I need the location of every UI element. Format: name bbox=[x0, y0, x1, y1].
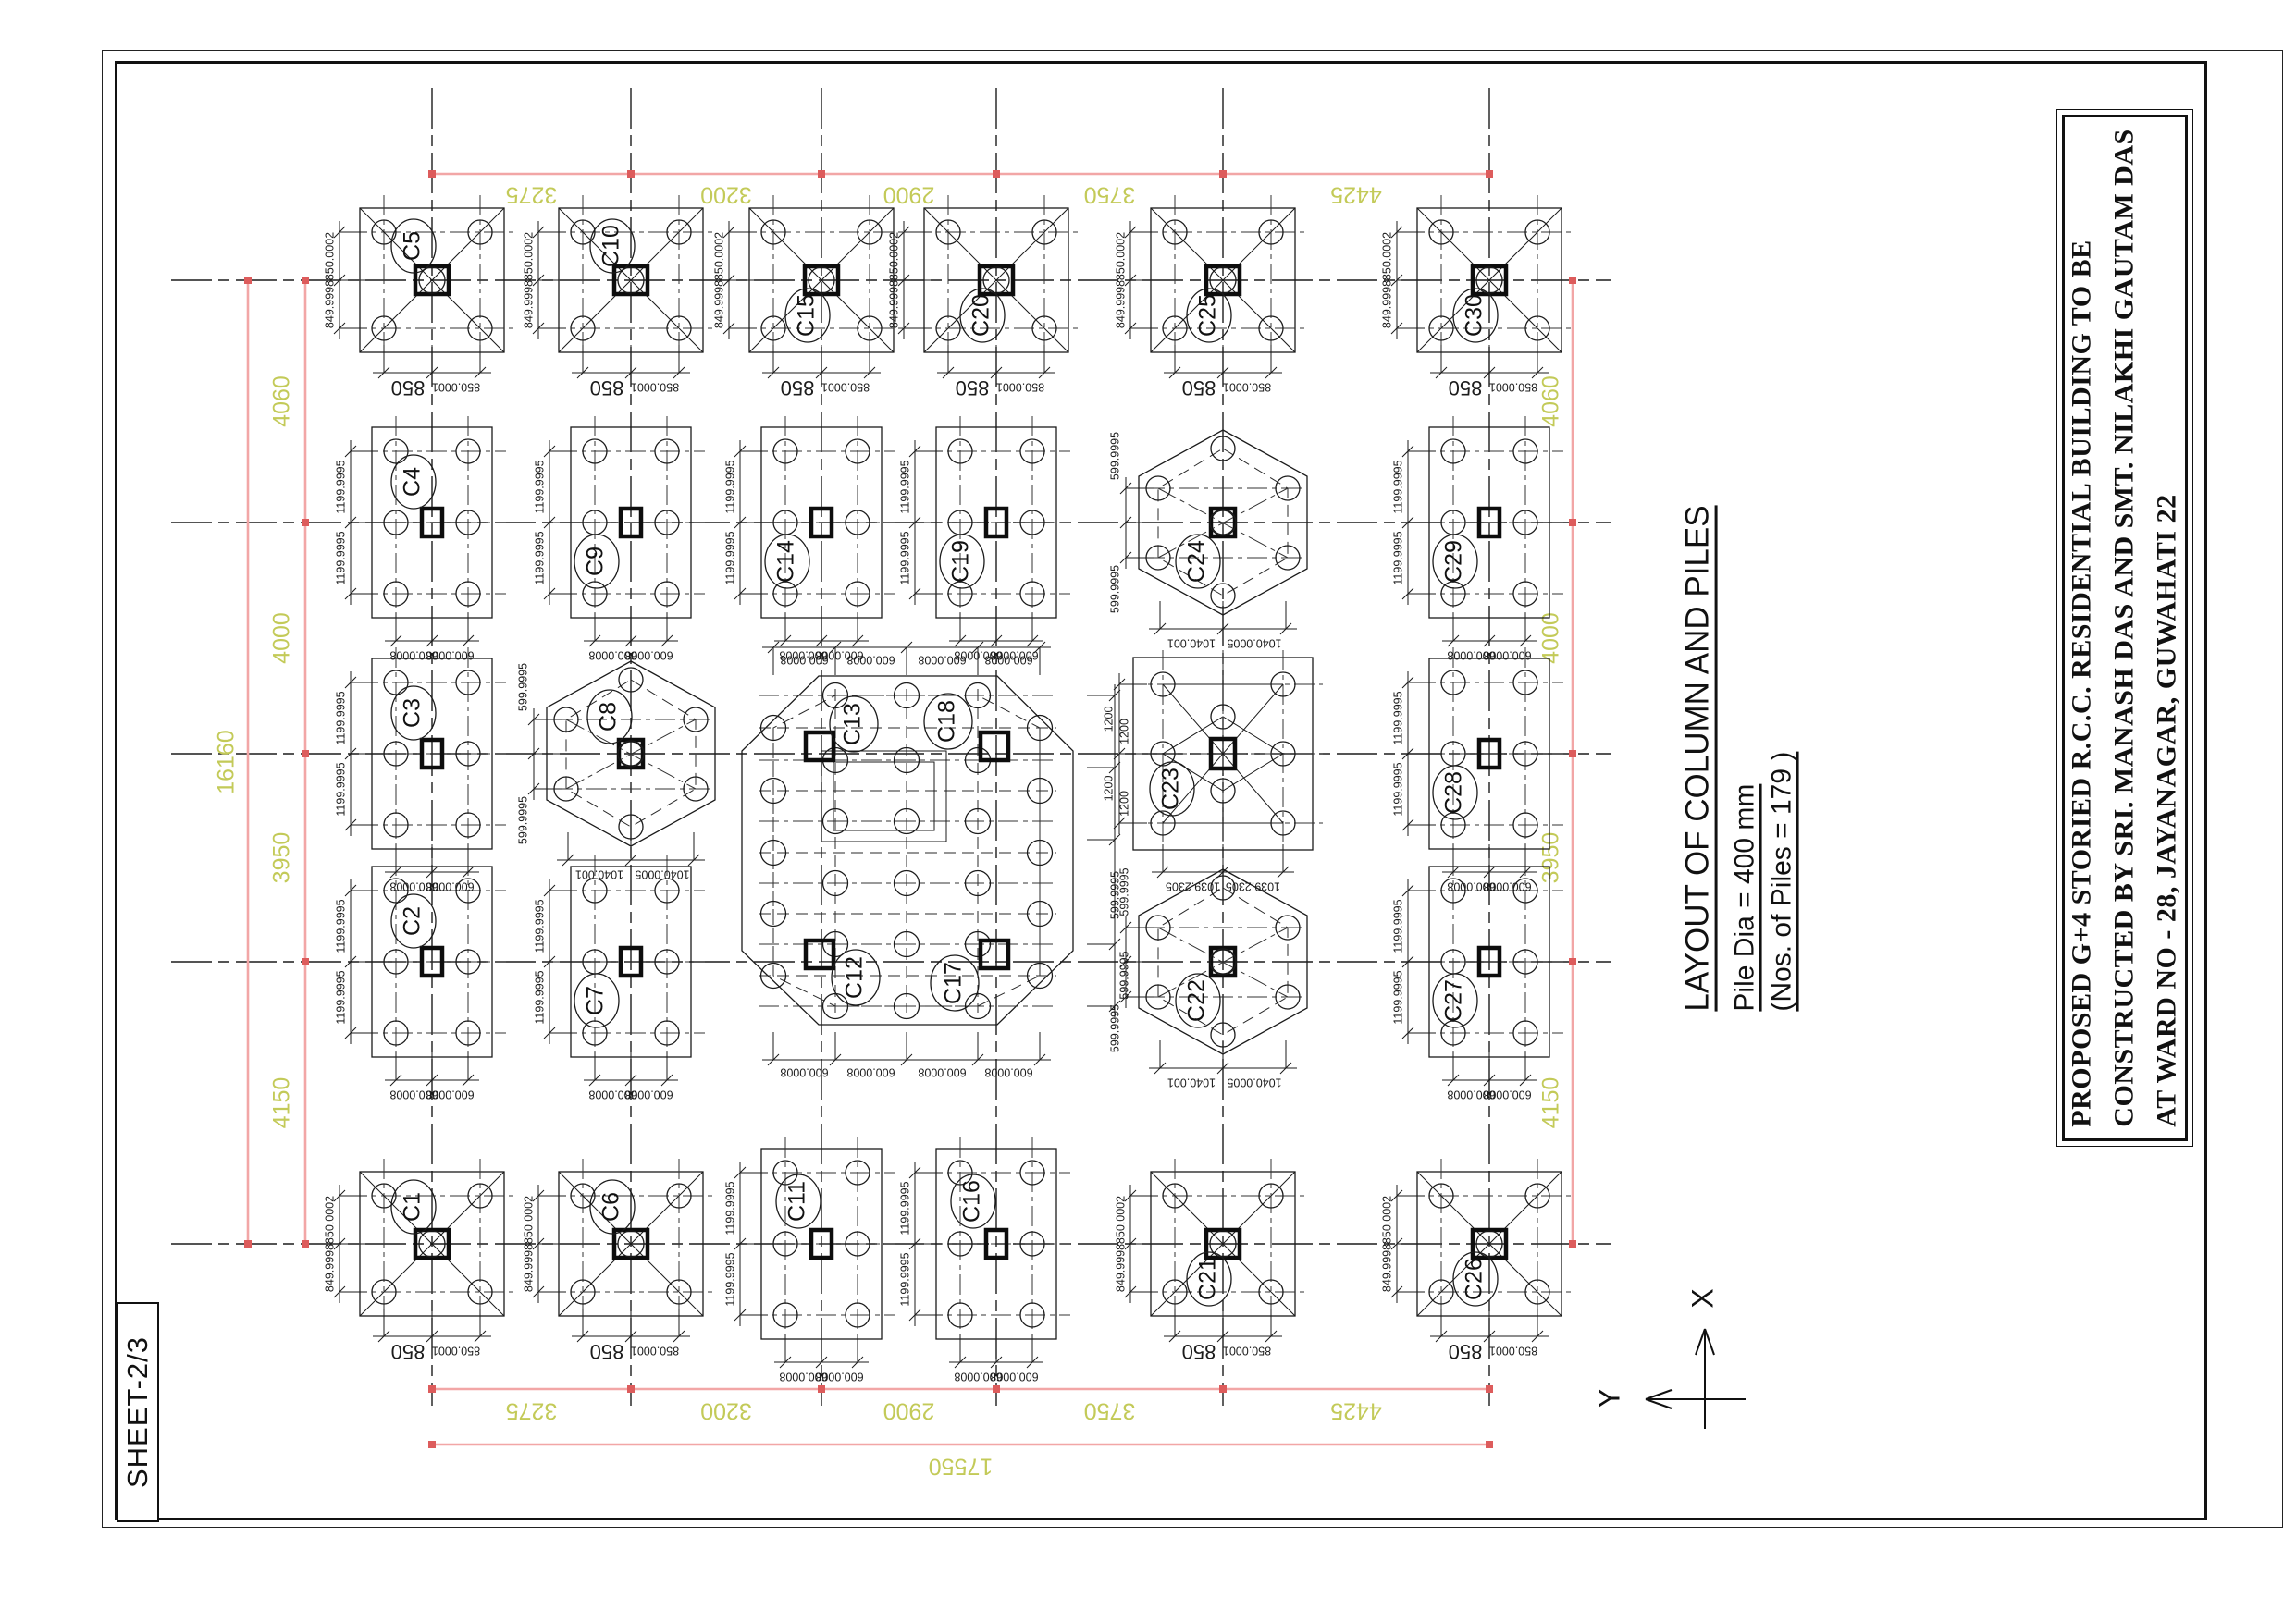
svg-text:1200: 1200 bbox=[1102, 707, 1115, 732]
svg-text:600.0008: 600.0008 bbox=[918, 1066, 966, 1079]
svg-text:599.9995: 599.9995 bbox=[1117, 951, 1130, 999]
svg-text:4000: 4000 bbox=[269, 612, 295, 664]
svg-text:1199.9995: 1199.9995 bbox=[334, 460, 347, 513]
pile-cap-C26: 850.0002849.9998850850.0001C26 bbox=[1380, 1159, 1574, 1363]
svg-text:850: 850 bbox=[590, 376, 624, 400]
svg-text:3950: 3950 bbox=[1538, 832, 1564, 884]
svg-text:2900: 2900 bbox=[883, 1397, 935, 1423]
svg-text:C24: C24 bbox=[1184, 540, 1210, 583]
svg-text:1199.9995: 1199.9995 bbox=[1391, 899, 1404, 953]
svg-text:600.0008: 600.0008 bbox=[426, 880, 474, 893]
svg-text:4425: 4425 bbox=[1330, 1397, 1382, 1423]
svg-text:C23: C23 bbox=[1158, 768, 1184, 810]
svg-text:1199.9995: 1199.9995 bbox=[1391, 691, 1404, 744]
svg-text:600.0008: 600.0008 bbox=[426, 649, 474, 662]
svg-text:850: 850 bbox=[1182, 376, 1216, 400]
svg-text:C10: C10 bbox=[599, 225, 624, 267]
svg-text:600.0008: 600.0008 bbox=[426, 1088, 474, 1101]
svg-text:850.0001: 850.0001 bbox=[1489, 1345, 1537, 1358]
svg-text:600.0008: 600.0008 bbox=[984, 1066, 1032, 1079]
pile-cap-C22: 599.9995599.99951040.0011040.0005C22 bbox=[1108, 869, 1307, 1089]
svg-text:1040.0005: 1040.0005 bbox=[1227, 1076, 1281, 1089]
svg-text:850: 850 bbox=[956, 376, 990, 400]
svg-text:850: 850 bbox=[1182, 1340, 1216, 1363]
svg-text:1199.9995: 1199.9995 bbox=[334, 899, 347, 953]
svg-text:4150: 4150 bbox=[269, 1077, 295, 1129]
svg-text:C8: C8 bbox=[596, 702, 622, 732]
pile-cap-C6: 850.0002849.9998850850.0001C6 bbox=[522, 1159, 716, 1363]
svg-text:599.9995: 599.9995 bbox=[1117, 867, 1130, 916]
svg-text:3950: 3950 bbox=[269, 832, 295, 884]
svg-text:2900: 2900 bbox=[883, 181, 935, 207]
svg-text:1040.001: 1040.001 bbox=[1167, 637, 1216, 650]
pile-cap-C1: 850.0002849.9998850850.0001C1 bbox=[323, 1159, 517, 1363]
svg-text:C6: C6 bbox=[599, 1192, 624, 1222]
svg-text:C1: C1 bbox=[400, 1192, 426, 1222]
svg-text:600.0008: 600.0008 bbox=[990, 1371, 1038, 1383]
pile-layout-plan: 3275320029003750442532753200290037504425… bbox=[0, 0, 2296, 1623]
svg-text:1199.9995: 1199.9995 bbox=[334, 970, 347, 1024]
svg-text:1199.9995: 1199.9995 bbox=[723, 1181, 736, 1235]
svg-text:600.0008: 600.0008 bbox=[780, 654, 828, 667]
svg-text:C30: C30 bbox=[1462, 294, 1487, 337]
svg-text:1199.9995: 1199.9995 bbox=[1391, 460, 1404, 513]
svg-text:849.9998: 849.9998 bbox=[323, 1244, 336, 1292]
svg-text:1040.0005: 1040.0005 bbox=[635, 868, 689, 881]
svg-text:599.9995: 599.9995 bbox=[516, 663, 529, 711]
svg-text:C12: C12 bbox=[842, 956, 868, 999]
svg-text:X: X bbox=[1685, 1288, 1719, 1308]
svg-text:1040.001: 1040.001 bbox=[575, 868, 623, 881]
svg-text:600.0008: 600.0008 bbox=[846, 1066, 895, 1079]
svg-text:C22: C22 bbox=[1184, 979, 1210, 1022]
svg-text:C3: C3 bbox=[400, 698, 426, 728]
svg-text:17550: 17550 bbox=[929, 1453, 994, 1479]
svg-text:850.0001: 850.0001 bbox=[631, 381, 679, 394]
svg-text:600.0008: 600.0008 bbox=[1483, 880, 1531, 893]
pile-cap-C19: 1199.99951199.9995600.0008600.0008C19 bbox=[898, 416, 1070, 662]
svg-text:850.0002: 850.0002 bbox=[1380, 232, 1393, 280]
svg-text:850: 850 bbox=[590, 1340, 624, 1363]
pile-cap-C24: 599.9995599.99951040.0011040.0005C24 bbox=[1108, 430, 1307, 650]
svg-text:C27: C27 bbox=[1441, 979, 1467, 1022]
svg-text:850: 850 bbox=[391, 1340, 426, 1363]
svg-text:850.0001: 850.0001 bbox=[1223, 1345, 1271, 1358]
svg-text:850.0002: 850.0002 bbox=[323, 232, 336, 280]
svg-text:850.0002: 850.0002 bbox=[1114, 1196, 1127, 1244]
svg-text:600.0008: 600.0008 bbox=[624, 649, 673, 662]
svg-text:C18: C18 bbox=[934, 700, 960, 743]
svg-text:1039.2305: 1039.2305 bbox=[1226, 880, 1280, 893]
svg-text:600.0008: 600.0008 bbox=[846, 654, 895, 667]
pile-cap-C25: 850.0002849.9998850850.0001C25 bbox=[1114, 195, 1308, 400]
svg-text:599.9995: 599.9995 bbox=[1108, 432, 1121, 480]
svg-text:3750: 3750 bbox=[1084, 1397, 1136, 1423]
svg-text:C20: C20 bbox=[969, 294, 994, 337]
svg-text:4000: 4000 bbox=[1538, 612, 1564, 664]
svg-text:1199.9995: 1199.9995 bbox=[1391, 970, 1404, 1024]
svg-text:1199.9995: 1199.9995 bbox=[898, 1252, 911, 1306]
svg-text:850.0002: 850.0002 bbox=[712, 232, 725, 280]
svg-text:850.0001: 850.0001 bbox=[631, 1345, 679, 1358]
svg-text:C7: C7 bbox=[583, 986, 609, 1015]
svg-text:850: 850 bbox=[391, 376, 426, 400]
svg-text:C25: C25 bbox=[1195, 294, 1221, 337]
svg-text:850.0001: 850.0001 bbox=[1223, 381, 1271, 394]
svg-text:850.0002: 850.0002 bbox=[1114, 232, 1127, 280]
svg-text:C13: C13 bbox=[840, 703, 866, 745]
svg-text:849.9998: 849.9998 bbox=[522, 280, 535, 328]
svg-text:850: 850 bbox=[781, 376, 815, 400]
pile-cap-C4: 1199.99951199.9995600.0008600.0008C4 bbox=[334, 416, 506, 662]
svg-text:C11: C11 bbox=[784, 1181, 810, 1222]
svg-text:599.9995: 599.9995 bbox=[516, 796, 529, 844]
svg-text:849.9998: 849.9998 bbox=[1380, 1244, 1393, 1292]
svg-text:1040.0005: 1040.0005 bbox=[1227, 637, 1281, 650]
svg-text:850.0002: 850.0002 bbox=[887, 232, 900, 280]
svg-text:4060: 4060 bbox=[1538, 375, 1564, 427]
svg-text:600.0008: 600.0008 bbox=[1483, 1088, 1531, 1101]
pile-cap-C8: 599.9995599.99951040.0011040.0005C8 bbox=[516, 661, 715, 881]
svg-text:1199.9995: 1199.9995 bbox=[334, 531, 347, 584]
pile-cap-C16: 1199.99951199.9995600.0008600.0008C16 bbox=[898, 1137, 1070, 1383]
svg-text:3200: 3200 bbox=[700, 1397, 752, 1423]
svg-text:1199.9995: 1199.9995 bbox=[533, 899, 546, 953]
pile-cap-C21: 850.0002849.9998850850.0001C21 bbox=[1114, 1159, 1308, 1363]
svg-text:1199.9995: 1199.9995 bbox=[898, 1181, 911, 1235]
svg-text:600.0008: 600.0008 bbox=[918, 654, 966, 667]
svg-text:849.9998: 849.9998 bbox=[1380, 280, 1393, 328]
svg-text:1199.9995: 1199.9995 bbox=[1391, 531, 1404, 584]
pile-cap-C15: 850.0002849.9998850850.0001C15 bbox=[712, 195, 907, 400]
svg-text:C17: C17 bbox=[941, 962, 967, 1004]
svg-text:Y: Y bbox=[1592, 1388, 1625, 1408]
svg-text:1199.9995: 1199.9995 bbox=[1391, 762, 1404, 816]
pile-cap-C10: 850.0002849.9998850850.0001C10 bbox=[522, 195, 716, 400]
svg-text:1200: 1200 bbox=[1117, 719, 1130, 744]
svg-text:16160: 16160 bbox=[214, 730, 240, 794]
svg-text:C16: C16 bbox=[959, 1180, 985, 1223]
svg-text:C28: C28 bbox=[1441, 771, 1467, 814]
svg-text:600.0008: 600.0008 bbox=[815, 1371, 863, 1383]
svg-text:849.9998: 849.9998 bbox=[1114, 280, 1127, 328]
svg-text:849.9998: 849.9998 bbox=[1114, 1244, 1127, 1292]
svg-text:600.0008: 600.0008 bbox=[780, 1066, 828, 1079]
svg-text:1199.9995: 1199.9995 bbox=[723, 1252, 736, 1306]
svg-text:1199.9995: 1199.9995 bbox=[533, 460, 546, 513]
svg-text:C5: C5 bbox=[400, 231, 426, 261]
svg-text:850.0001: 850.0001 bbox=[432, 1345, 480, 1358]
svg-text:C2: C2 bbox=[400, 906, 426, 936]
svg-text:850: 850 bbox=[1449, 1340, 1483, 1363]
svg-text:C9: C9 bbox=[583, 547, 609, 576]
svg-text:1199.9995: 1199.9995 bbox=[533, 970, 546, 1024]
svg-text:850.0001: 850.0001 bbox=[432, 381, 480, 394]
svg-text:3275: 3275 bbox=[506, 1397, 558, 1423]
svg-text:C4: C4 bbox=[400, 467, 426, 497]
pile-cap-C11: 1199.99951199.9995600.0008600.0008C11 bbox=[723, 1137, 895, 1383]
svg-text:1199.9995: 1199.9995 bbox=[898, 460, 911, 513]
svg-text:4425: 4425 bbox=[1330, 181, 1382, 207]
svg-text:C19: C19 bbox=[948, 540, 974, 583]
svg-text:1200: 1200 bbox=[1117, 791, 1130, 817]
drawing-sheet: { "sheet": { "label": "SHEET-2/3" }, "ti… bbox=[0, 0, 2296, 1623]
axis-indicator: XY bbox=[1592, 1288, 1746, 1429]
svg-text:850: 850 bbox=[1449, 376, 1483, 400]
svg-text:850.0001: 850.0001 bbox=[996, 381, 1044, 394]
svg-text:850.0001: 850.0001 bbox=[821, 381, 870, 394]
svg-text:4150: 4150 bbox=[1538, 1077, 1564, 1129]
svg-text:599.9995: 599.9995 bbox=[1108, 565, 1121, 613]
pile-cap-raft-C12-C13-C17-C18: C13C18C12C17600.0008600.0008600.0008600.… bbox=[742, 642, 1130, 1079]
svg-text:849.9998: 849.9998 bbox=[522, 1244, 535, 1292]
svg-text:3200: 3200 bbox=[700, 181, 752, 207]
svg-text:C15: C15 bbox=[794, 294, 820, 337]
svg-text:1200: 1200 bbox=[1102, 776, 1115, 802]
svg-text:C26: C26 bbox=[1462, 1258, 1487, 1300]
svg-text:850.0001: 850.0001 bbox=[1489, 381, 1537, 394]
pile-cap-C20: 850.0002849.9998850850.0001C20 bbox=[887, 195, 1081, 400]
svg-text:1040.001: 1040.001 bbox=[1167, 1076, 1216, 1089]
svg-text:849.9998: 849.9998 bbox=[712, 280, 725, 328]
pile-cap-C9: 1199.99951199.9995600.0008600.0008C9 bbox=[533, 416, 705, 662]
svg-text:600.0008: 600.0008 bbox=[984, 654, 1032, 667]
svg-text:C14: C14 bbox=[773, 540, 799, 583]
svg-text:600.0008: 600.0008 bbox=[1483, 649, 1531, 662]
svg-text:4060: 4060 bbox=[269, 375, 295, 427]
svg-text:3750: 3750 bbox=[1084, 181, 1136, 207]
svg-text:849.9998: 849.9998 bbox=[323, 280, 336, 328]
svg-text:850.0002: 850.0002 bbox=[522, 1196, 535, 1244]
svg-text:850.0002: 850.0002 bbox=[522, 232, 535, 280]
svg-text:1199.9995: 1199.9995 bbox=[334, 762, 347, 816]
svg-text:1199.9995: 1199.9995 bbox=[723, 460, 736, 513]
pile-cap-C3: 1199.99951199.9995600.0008600.0008C3 bbox=[334, 647, 506, 893]
svg-text:3275: 3275 bbox=[506, 181, 558, 207]
pile-cap-C14: 1199.99951199.9995600.0008600.0008C14 bbox=[723, 416, 895, 662]
pile-cap-C30: 850.0002849.9998850850.0001C30 bbox=[1380, 195, 1574, 400]
pile-cap-C7: 1199.99951199.9995600.0008600.0008C7 bbox=[533, 855, 705, 1101]
pile-cap-C5: 850.0002849.9998850850.0001C5 bbox=[323, 195, 517, 400]
svg-text:1199.9995: 1199.9995 bbox=[334, 691, 347, 744]
svg-text:1199.9995: 1199.9995 bbox=[898, 531, 911, 584]
svg-text:1199.9995: 1199.9995 bbox=[533, 531, 546, 584]
svg-text:C29: C29 bbox=[1441, 540, 1467, 583]
svg-text:600.0008: 600.0008 bbox=[624, 1088, 673, 1101]
svg-text:1039.2305: 1039.2305 bbox=[1166, 880, 1220, 893]
svg-text:850.0002: 850.0002 bbox=[1380, 1196, 1393, 1244]
svg-text:850.0002: 850.0002 bbox=[323, 1196, 336, 1244]
svg-text:C21: C21 bbox=[1195, 1258, 1221, 1300]
pile-cap-C23: 120012001039.23051039.2305C23 bbox=[1102, 650, 1323, 893]
svg-text:849.9998: 849.9998 bbox=[887, 280, 900, 328]
svg-text:1199.9995: 1199.9995 bbox=[723, 531, 736, 584]
